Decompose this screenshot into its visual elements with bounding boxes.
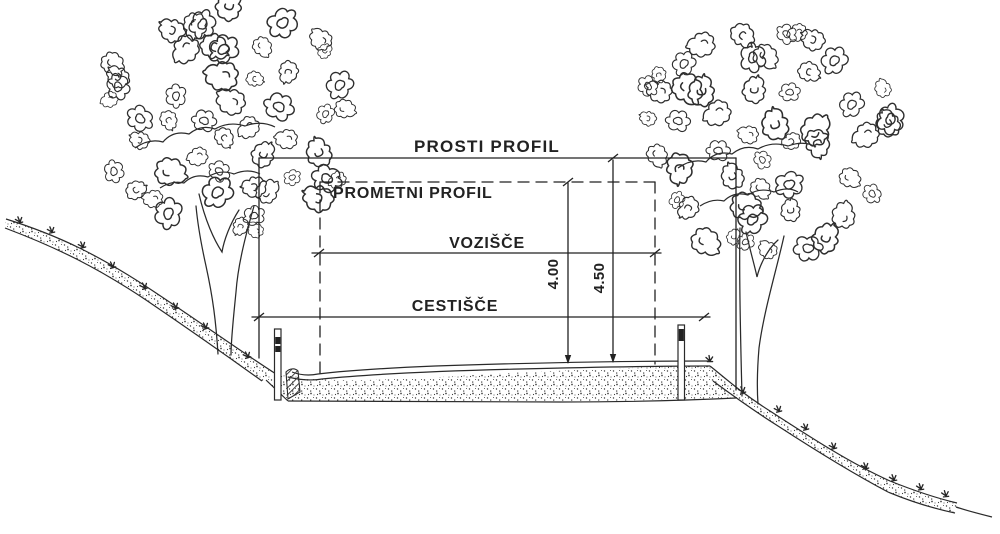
leaf-clump	[232, 113, 264, 144]
leaf-clump	[749, 39, 785, 75]
leaf-clump	[860, 182, 883, 207]
terrain-tail-line	[956, 507, 992, 517]
leaf-clump	[806, 218, 847, 258]
leaf-clump	[250, 34, 277, 62]
leaf-clump	[238, 171, 270, 201]
leaf-clump	[209, 81, 250, 120]
leaf-clump	[667, 47, 701, 80]
leaf-clump	[686, 222, 728, 264]
leaf-clump	[272, 127, 300, 151]
right-tree	[634, 20, 910, 404]
leaf-clump	[872, 76, 892, 99]
terrain	[5, 216, 992, 517]
leaf-clump	[165, 30, 205, 70]
leaf-clump	[720, 162, 746, 190]
leaf-clump	[180, 11, 209, 44]
leaf-clump	[126, 126, 153, 153]
leaf-clump	[184, 146, 209, 168]
leaf-clump	[122, 101, 158, 137]
leaf-clump	[791, 233, 825, 265]
leaf-clump	[312, 101, 338, 127]
leaf-clump	[666, 189, 689, 212]
leaf-clump	[683, 71, 722, 112]
label-prometni-profil: PROMETNI PROFIL	[333, 185, 493, 202]
leaf-clump	[728, 21, 757, 52]
leaf-clump	[731, 199, 773, 240]
leaf-clump	[159, 110, 178, 131]
leaf-clump	[140, 188, 164, 209]
label-prosti-profil: PROSTI PROFIL	[414, 137, 560, 156]
leaf-clump	[305, 136, 335, 169]
leaf-clump	[795, 106, 839, 151]
leaf-clump	[836, 164, 866, 194]
leaf-clump	[663, 106, 694, 136]
cross-section-drawing: PROSTI PROFIL PROMETNI PROFIL VOZIŠČE CE…	[0, 0, 1000, 534]
height-dimension-4-00	[565, 183, 571, 364]
leaf-clump	[103, 159, 126, 184]
leaf-clump	[684, 31, 716, 58]
leaf-clump	[637, 107, 660, 130]
leaf-clump	[162, 82, 189, 111]
leaf-clump	[734, 122, 761, 147]
leaf-clump	[754, 235, 781, 262]
leaf-clump	[698, 97, 735, 131]
dimension-value-prosti: 4.50	[591, 263, 608, 294]
leaf-clump	[659, 149, 698, 190]
height-dimension-4-50	[610, 160, 616, 363]
leaf-clump	[320, 66, 359, 104]
leaf-clump	[199, 57, 241, 95]
leaf-clump	[644, 142, 670, 171]
leaf-clump	[751, 148, 774, 172]
leaf-clump	[785, 22, 809, 43]
leaf-clump	[315, 42, 335, 61]
leaf-clump	[777, 195, 805, 225]
drawing-canvas: PROSTI PROFIL PROMETNI PROFIL VOZIŠČE CE…	[0, 0, 1000, 534]
leaf-clump	[780, 131, 801, 150]
leaf-clump	[273, 57, 303, 87]
leaf-clump	[126, 181, 148, 200]
leaf-clump	[737, 72, 772, 108]
leaf-clump	[794, 57, 824, 87]
label-cestisce: CESTIŠČE	[412, 296, 498, 315]
leaf-clump	[758, 105, 794, 143]
prosti-profil-outline	[259, 154, 736, 390]
delineator-post-left	[275, 329, 282, 400]
leaf-clump	[834, 87, 869, 122]
delineator-post-right	[678, 325, 685, 400]
leaf-clump	[184, 5, 222, 44]
leaf-clump	[641, 74, 676, 107]
leaf-clump	[259, 86, 299, 126]
dimension-value-prometni: 4.00	[545, 259, 562, 290]
leaf-clump	[282, 168, 302, 187]
leaf-clump	[773, 20, 801, 48]
leaf-clump	[263, 4, 304, 43]
leaf-clump	[149, 194, 187, 234]
left-tree	[97, 0, 360, 355]
leaf-clump	[304, 22, 336, 54]
leaf-clump	[214, 127, 235, 150]
right-tree-canopy	[634, 20, 910, 265]
leaf-clump	[243, 68, 267, 91]
leaf-clump	[773, 170, 806, 200]
leaf-clump	[332, 96, 360, 122]
leaf-clump	[778, 81, 802, 103]
roadbed-gravel	[266, 365, 736, 402]
label-vozisce: VOZIŠČE	[449, 233, 525, 252]
right-tree-trunk	[740, 228, 784, 404]
leaf-clump	[155, 12, 190, 48]
right-slope-embankment	[710, 366, 992, 517]
